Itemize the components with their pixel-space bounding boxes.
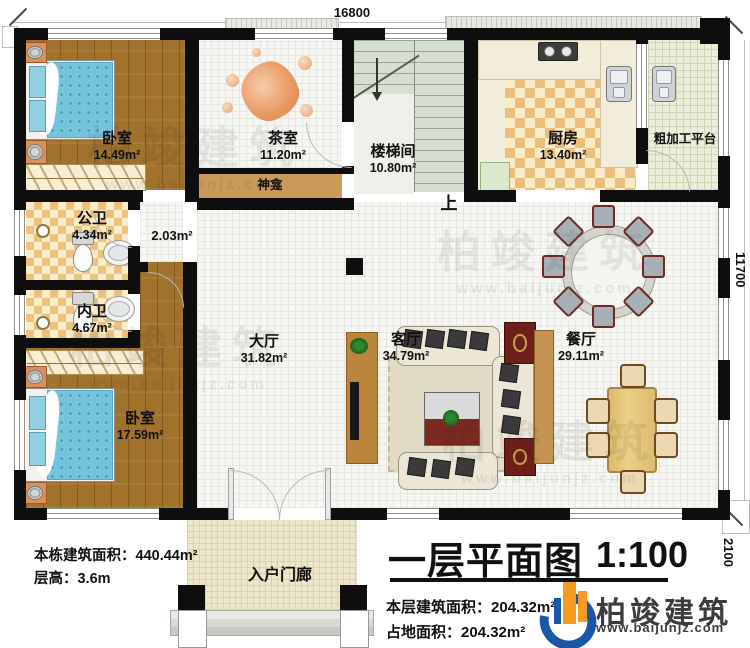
window-dining-east-2 bbox=[718, 298, 730, 360]
building-area-row: 本栋建筑面积：440.44m² bbox=[34, 544, 198, 565]
room-area: 14.49m² bbox=[94, 148, 141, 163]
window-bedroom-bottom-west bbox=[14, 400, 26, 470]
dimension-top: 16800 bbox=[312, 5, 392, 20]
corner-block-top-right bbox=[700, 18, 730, 44]
tea-dot-2 bbox=[298, 56, 312, 70]
floor-area-row: 本层建筑面积：204.32m² bbox=[386, 596, 555, 617]
room-label-bedroom-top: 卧室 14.49m² bbox=[82, 130, 152, 163]
porch-pilaster-right bbox=[340, 610, 369, 648]
round-chair-e bbox=[642, 255, 665, 278]
bed-top-pillow-2 bbox=[29, 100, 46, 132]
window-hall-south bbox=[387, 508, 439, 520]
sofa-pillow-4 bbox=[469, 331, 489, 351]
room-label-kitchen: 厨房 13.40m² bbox=[528, 130, 598, 163]
tea-dot-5 bbox=[252, 48, 261, 57]
kitchen-sink bbox=[606, 66, 632, 102]
tea-dot-4 bbox=[300, 104, 313, 117]
round-chair-s bbox=[592, 305, 615, 328]
window-dining-east-3 bbox=[718, 420, 730, 490]
room-name: 神龛 bbox=[257, 178, 282, 193]
wall-divider-top bbox=[636, 28, 648, 44]
room-area: 34.79m² bbox=[383, 349, 430, 364]
footprint-row: 占地面积：204.32m² bbox=[386, 621, 525, 642]
window-dining-south bbox=[570, 508, 682, 520]
wall-corridor-bottom bbox=[128, 262, 148, 272]
room-name: 茶室 bbox=[268, 130, 298, 148]
room-name: 卧室 bbox=[125, 410, 155, 428]
sofa-pillow-8 bbox=[407, 457, 427, 477]
bed-top-pillow-1 bbox=[29, 66, 46, 98]
room-area: 10.80m² bbox=[370, 161, 417, 176]
floor-height-value: 3.6m bbox=[78, 571, 111, 587]
floor-plan-sheet: 16800 11700 2100 bbox=[0, 0, 750, 648]
room-label-tea-room: 茶室 11.20m² bbox=[248, 130, 318, 163]
room-label-corridor: 2.03m² bbox=[142, 228, 202, 244]
room-label-shrine: 神龛 bbox=[240, 178, 300, 193]
tea-dot-1 bbox=[226, 74, 239, 87]
footprint-value: 204.32m² bbox=[461, 624, 525, 641]
window-dining-east-1 bbox=[718, 208, 730, 258]
sofa-pillow-9 bbox=[431, 459, 451, 479]
kitchen-counter-right bbox=[600, 40, 638, 168]
stove bbox=[538, 42, 578, 61]
fridge bbox=[480, 162, 510, 192]
window-stairwell bbox=[385, 28, 447, 40]
wall-bedroom-bottom-right bbox=[183, 262, 197, 508]
room-area: 4.67m² bbox=[72, 321, 112, 336]
window-bedroom-top bbox=[48, 28, 160, 40]
round-chair-w bbox=[542, 255, 565, 278]
room-label-inner-bathroom: 内卫 4.67m² bbox=[56, 303, 128, 336]
nightstand-top-2 bbox=[23, 140, 47, 164]
up-text: 上 bbox=[441, 194, 458, 214]
room-name: 入户门廊 bbox=[248, 566, 312, 585]
room-name: 餐厅 bbox=[566, 331, 596, 349]
room-name: 公卫 bbox=[77, 210, 107, 228]
floor-height-label: 层高： bbox=[34, 571, 78, 587]
column bbox=[346, 258, 363, 275]
window-bedroom-bottom bbox=[47, 508, 159, 520]
nightstand-bottom-1 bbox=[23, 366, 47, 388]
room-label-bedroom-bottom: 卧室 17.59m² bbox=[105, 410, 175, 443]
wall-kitchen-left bbox=[464, 28, 478, 202]
rect-chair-right-2 bbox=[654, 432, 678, 458]
room-name: 粗加工平台 bbox=[654, 132, 717, 147]
side-table-red-2 bbox=[504, 438, 536, 476]
round-chair-n bbox=[592, 205, 615, 228]
bed-bottom-pillow-1 bbox=[29, 396, 46, 430]
room-area: 13.40m² bbox=[540, 148, 587, 163]
porch-column-right bbox=[340, 585, 367, 610]
nightstand-top-1 bbox=[23, 42, 47, 63]
scale-label: 1:100 bbox=[596, 534, 688, 576]
floor-height-row: 层高：3.6m bbox=[34, 567, 111, 588]
floor-area-label: 本层建筑面积： bbox=[386, 599, 491, 616]
rect-chair-right-1 bbox=[654, 398, 678, 424]
room-area: 31.82m² bbox=[241, 351, 288, 366]
room-name: 客厅 bbox=[391, 331, 421, 349]
stair-arrow-line bbox=[376, 58, 378, 92]
room-label-public-bathroom: 公卫 4.34m² bbox=[56, 210, 128, 243]
sofa-pillow-5 bbox=[499, 363, 519, 383]
window-kitchen-pass bbox=[636, 44, 648, 128]
building-area-label: 本栋建筑面积： bbox=[34, 548, 136, 564]
room-name: 大厅 bbox=[249, 333, 279, 351]
tv-cabinet-plant bbox=[350, 338, 368, 354]
sofa-pillow-7 bbox=[501, 415, 521, 435]
window-inner-bath bbox=[14, 295, 26, 335]
dimension-right-lower: 2100 bbox=[721, 538, 736, 567]
bed-bottom-pillow-2 bbox=[29, 432, 46, 466]
room-label-entry-porch: 入户门廊 bbox=[230, 566, 330, 585]
stair-up-label: 上 bbox=[438, 194, 460, 214]
stair-arrow-head bbox=[372, 92, 382, 106]
wall-bath-right-a bbox=[128, 202, 140, 210]
window-public-bath bbox=[14, 210, 26, 256]
room-name: 内卫 bbox=[77, 303, 107, 321]
wall-below-inner-bath bbox=[14, 338, 140, 348]
footprint-label: 占地面积： bbox=[386, 624, 461, 641]
room-area: 29.11m² bbox=[558, 349, 604, 364]
room-label-stairwell: 楼梯间 10.80m² bbox=[356, 143, 430, 176]
corner-tick-top-left bbox=[9, 8, 27, 26]
towel-ring-inner bbox=[36, 316, 50, 330]
rect-chair-left-2 bbox=[586, 432, 610, 458]
brand-logo bbox=[540, 582, 592, 640]
brand-website: www.baijunjz.com bbox=[596, 620, 724, 635]
rect-chair-bottom bbox=[620, 470, 646, 494]
logo-building-bar-2 bbox=[578, 591, 587, 622]
logo-building-bar-1 bbox=[563, 582, 576, 624]
room-area: 4.34m² bbox=[72, 228, 112, 243]
sofa-pillow-10 bbox=[455, 457, 475, 477]
wall-below-bedroom-top bbox=[14, 190, 143, 202]
porch-pilaster-left bbox=[178, 610, 207, 648]
sofa-pillow-6 bbox=[501, 389, 521, 409]
wall-shrine-bottom bbox=[197, 198, 354, 210]
room-area: 11.20m² bbox=[260, 148, 306, 163]
wall-kitchen-bottom-right bbox=[600, 190, 648, 202]
dimension-right: 11700 bbox=[733, 252, 748, 287]
nightstand-bottom-2 bbox=[23, 482, 47, 504]
wall-bath-partition bbox=[14, 280, 140, 290]
wardrobe-top bbox=[24, 164, 146, 191]
coffee-table-plant bbox=[443, 410, 459, 426]
platform-sink bbox=[652, 66, 676, 102]
wall-shrine-top bbox=[197, 168, 354, 174]
wall-kitchen-bottom-left bbox=[466, 190, 516, 202]
room-name: 楼梯间 bbox=[370, 143, 415, 161]
wall-tea-right-a bbox=[342, 28, 354, 122]
page-title: 一层平面图 bbox=[388, 530, 583, 585]
rect-dining-table bbox=[607, 387, 657, 473]
side-table-red-1 bbox=[504, 322, 536, 364]
title-underline bbox=[390, 578, 668, 582]
porch-column-left bbox=[178, 585, 205, 610]
sofa-pillow-3 bbox=[447, 329, 467, 349]
towel-ring-public bbox=[36, 224, 50, 238]
room-label-dining-room: 餐厅 29.11m² bbox=[548, 331, 614, 364]
room-label-living-room: 客厅 34.79m² bbox=[374, 331, 438, 364]
room-name: 厨房 bbox=[548, 130, 578, 148]
rect-chair-top bbox=[620, 364, 646, 388]
porch-floor bbox=[187, 520, 357, 610]
room-area: 2.03m² bbox=[151, 228, 192, 244]
room-name: 卧室 bbox=[102, 130, 132, 148]
building-area-value: 440.44m² bbox=[136, 548, 198, 564]
window-tea-room bbox=[255, 28, 333, 40]
logo-building-bar-3 bbox=[554, 598, 561, 624]
room-label-hall: 大厅 31.82m² bbox=[233, 333, 295, 366]
tea-dot-3 bbox=[222, 102, 233, 113]
room-area: 17.59m² bbox=[117, 428, 164, 443]
room-label-prep-platform: 粗加工平台 bbox=[642, 132, 728, 147]
wall-bedroom-top-right bbox=[185, 28, 199, 202]
rect-chair-left-1 bbox=[586, 398, 610, 424]
tv bbox=[350, 382, 359, 440]
